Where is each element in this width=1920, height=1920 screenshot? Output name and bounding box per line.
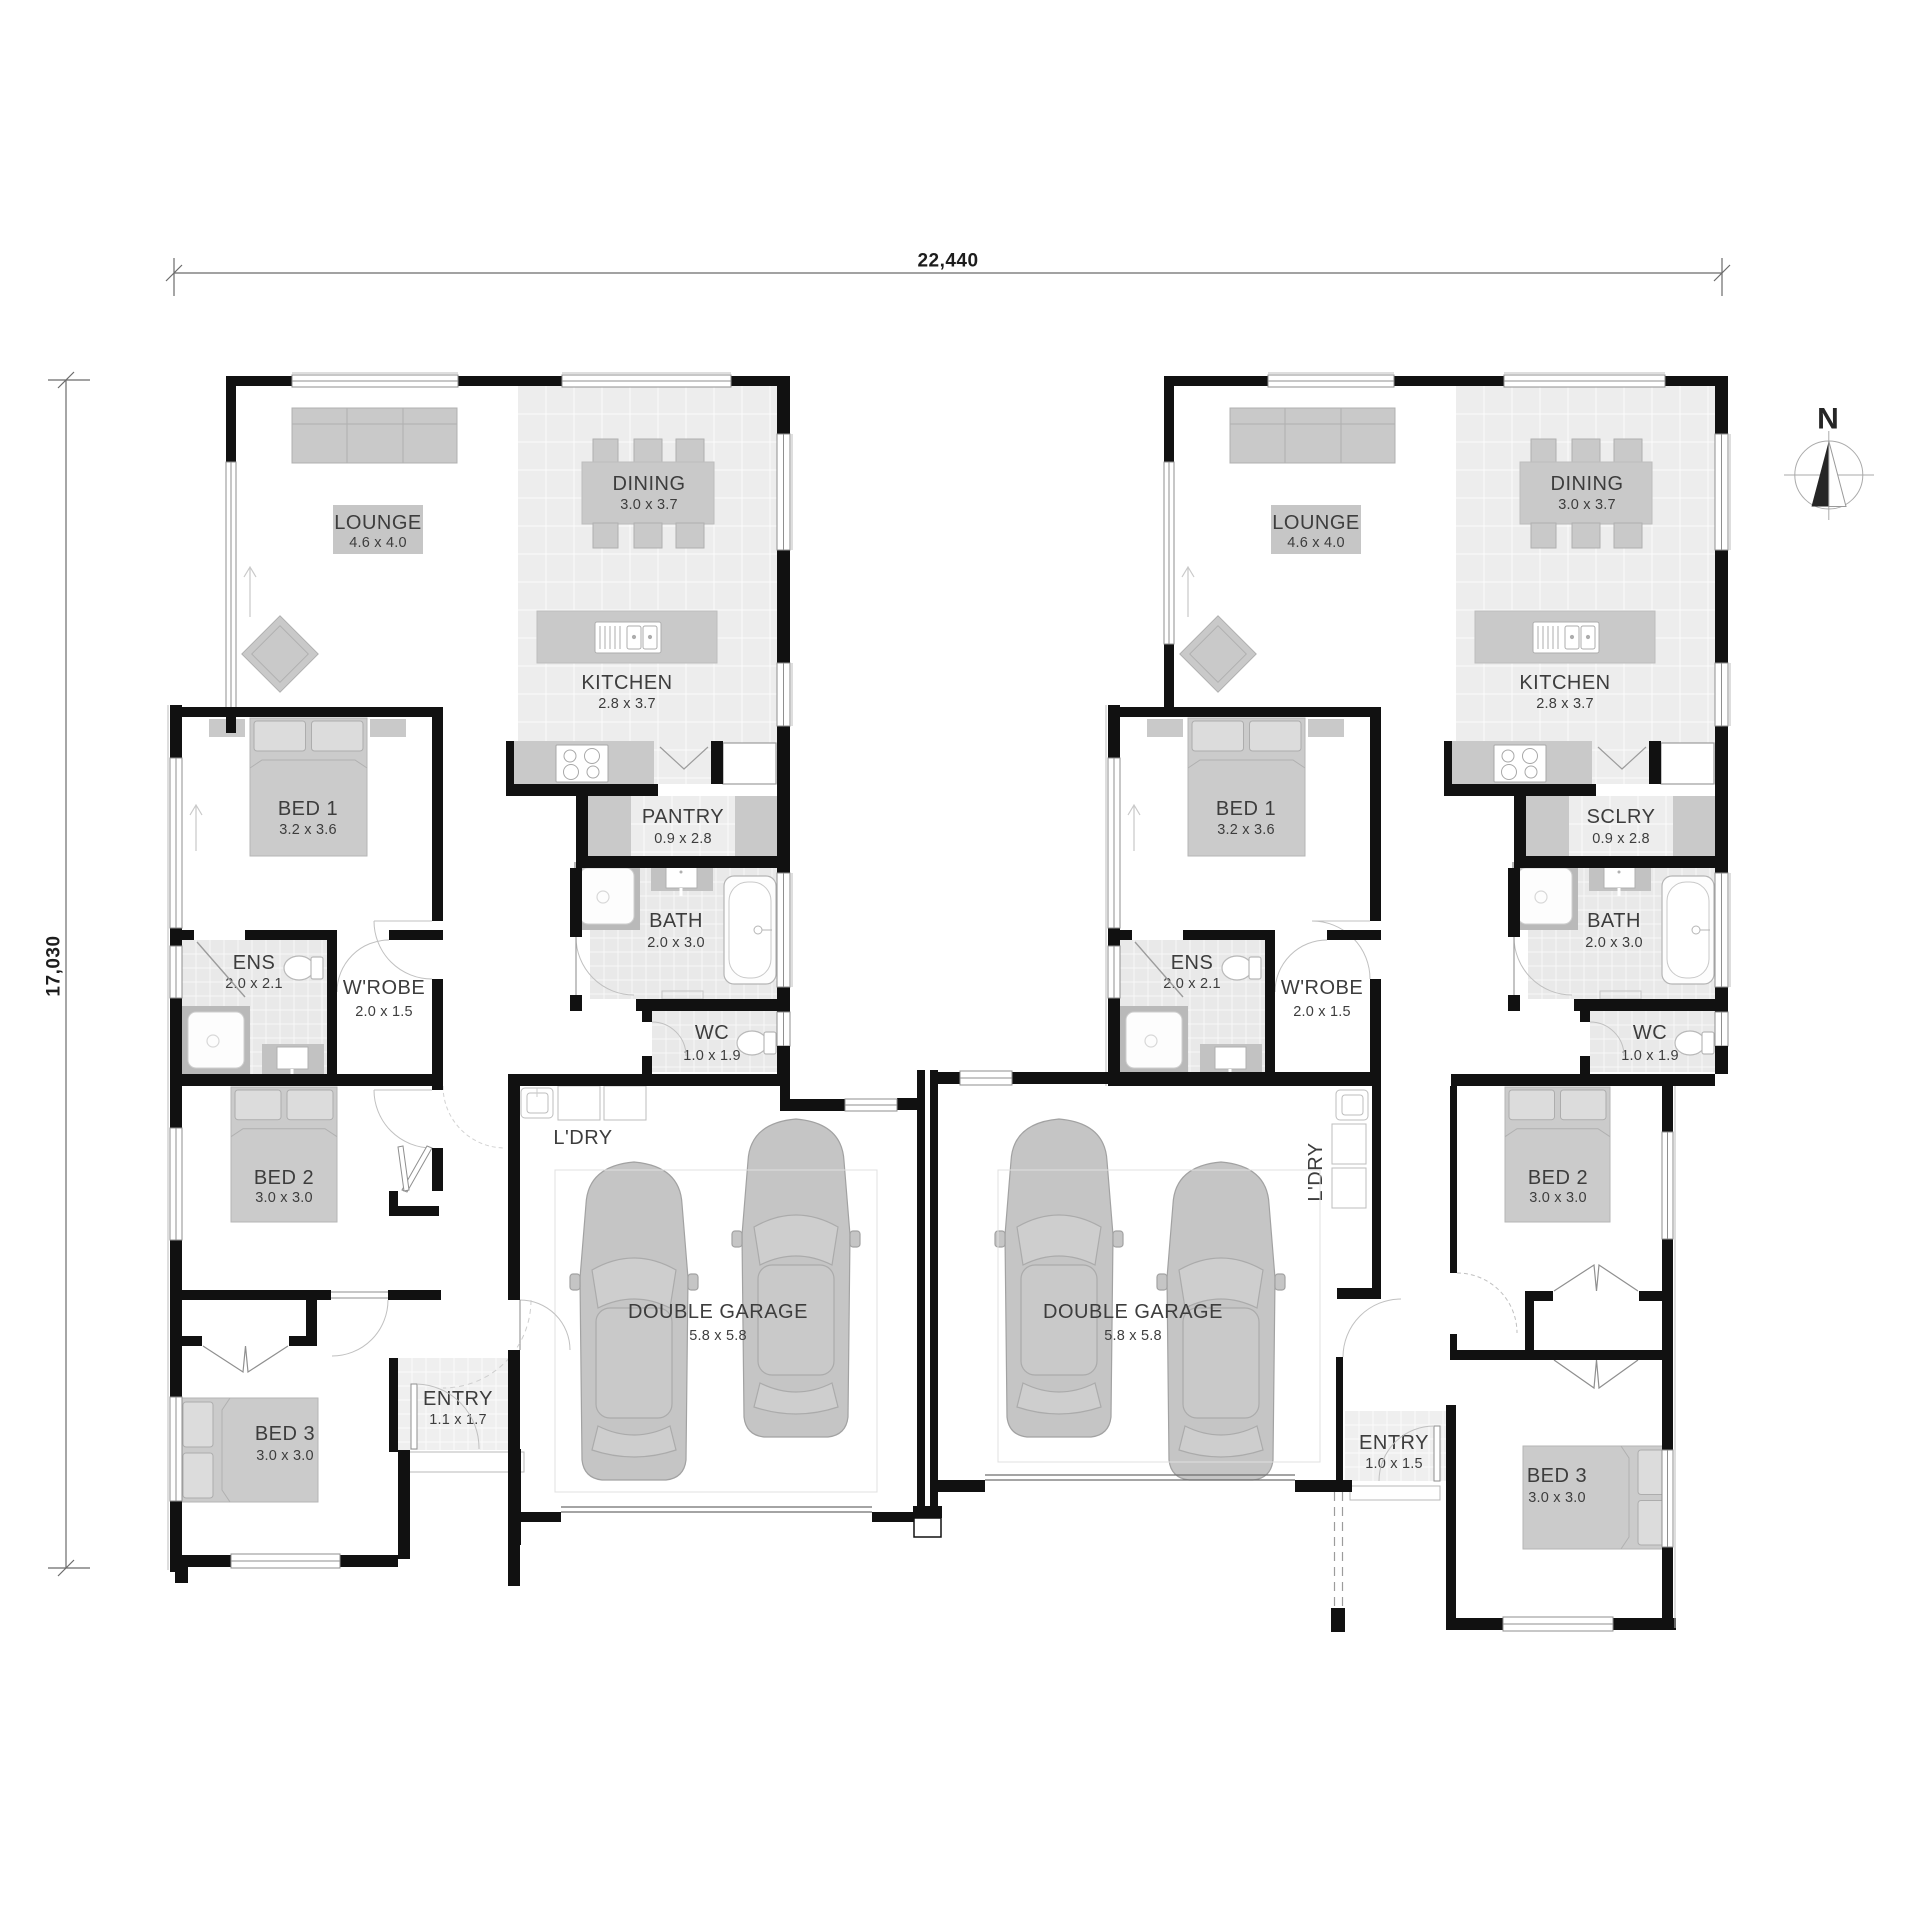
svg-text:5.8 x 5.8: 5.8 x 5.8 [689,1328,746,1344]
svg-text:BED 3: BED 3 [255,1423,315,1445]
svg-text:BATH: BATH [1587,910,1641,932]
svg-text:SCLRY: SCLRY [1587,806,1656,828]
svg-text:W'ROBE: W'ROBE [343,977,425,999]
svg-text:BED 1: BED 1 [1216,798,1276,820]
svg-text:ENTRY: ENTRY [423,1388,493,1410]
svg-text:3.0 x 3.0: 3.0 x 3.0 [256,1448,313,1464]
svg-text:2.0 x 3.0: 2.0 x 3.0 [647,935,704,951]
svg-text:DOUBLE GARAGE: DOUBLE GARAGE [1043,1301,1223,1323]
svg-text:ENS: ENS [233,952,276,974]
svg-text:1.0 x 1.9: 1.0 x 1.9 [1621,1048,1678,1064]
svg-text:3.2 x 3.6: 3.2 x 3.6 [279,822,336,838]
svg-text:W'ROBE: W'ROBE [1281,977,1363,999]
svg-text:ENS: ENS [1171,952,1214,974]
svg-text:3.0 x 3.7: 3.0 x 3.7 [1558,497,1615,513]
svg-text:4.6 x 4.0: 4.6 x 4.0 [349,535,406,551]
svg-text:N: N [1817,403,1839,436]
svg-text:2.0 x 3.0: 2.0 x 3.0 [1585,935,1642,951]
svg-text:DINING: DINING [613,473,686,495]
svg-text:0.9 x 2.8: 0.9 x 2.8 [654,831,711,847]
svg-text:17,030: 17,030 [44,935,65,996]
svg-text:L'DRY: L'DRY [1305,1142,1327,1201]
svg-text:3.0 x 3.0: 3.0 x 3.0 [255,1190,312,1206]
svg-text:2.8 x 3.7: 2.8 x 3.7 [1536,696,1593,712]
svg-text:DOUBLE GARAGE: DOUBLE GARAGE [628,1301,808,1323]
svg-text:BATH: BATH [649,910,703,932]
svg-text:2.0 x 1.5: 2.0 x 1.5 [355,1004,412,1020]
svg-text:WC: WC [695,1022,729,1044]
svg-text:1.0 x 1.9: 1.0 x 1.9 [683,1048,740,1064]
svg-text:1.0 x 1.5: 1.0 x 1.5 [1365,1456,1422,1472]
svg-text:L'DRY: L'DRY [553,1127,612,1149]
svg-text:BED 2: BED 2 [1528,1167,1588,1189]
svg-text:1.1 x 1.7: 1.1 x 1.7 [429,1412,486,1428]
svg-text:PANTRY: PANTRY [642,806,724,828]
svg-text:BED 2: BED 2 [254,1167,314,1189]
svg-text:LOUNGE: LOUNGE [1272,512,1359,534]
svg-text:5.8 x 5.8: 5.8 x 5.8 [1104,1328,1161,1344]
svg-text:3.0 x 3.0: 3.0 x 3.0 [1528,1490,1585,1506]
svg-text:3.2 x 3.6: 3.2 x 3.6 [1217,822,1274,838]
svg-text:BED 3: BED 3 [1527,1465,1587,1487]
svg-text:0.9 x 2.8: 0.9 x 2.8 [1592,831,1649,847]
svg-text:LOUNGE: LOUNGE [334,512,421,534]
svg-text:KITCHEN: KITCHEN [581,672,672,694]
svg-text:WC: WC [1633,1022,1667,1044]
svg-text:DINING: DINING [1551,473,1624,495]
svg-text:KITCHEN: KITCHEN [1519,672,1610,694]
svg-text:2.0 x 1.5: 2.0 x 1.5 [1293,1004,1350,1020]
svg-text:3.0 x 3.7: 3.0 x 3.7 [620,497,677,513]
svg-text:22,440: 22,440 [917,251,978,272]
svg-text:3.0 x 3.0: 3.0 x 3.0 [1529,1190,1586,1206]
svg-text:4.6 x 4.0: 4.6 x 4.0 [1287,535,1344,551]
svg-text:BED 1: BED 1 [278,798,338,820]
svg-text:2.8 x 3.7: 2.8 x 3.7 [598,696,655,712]
